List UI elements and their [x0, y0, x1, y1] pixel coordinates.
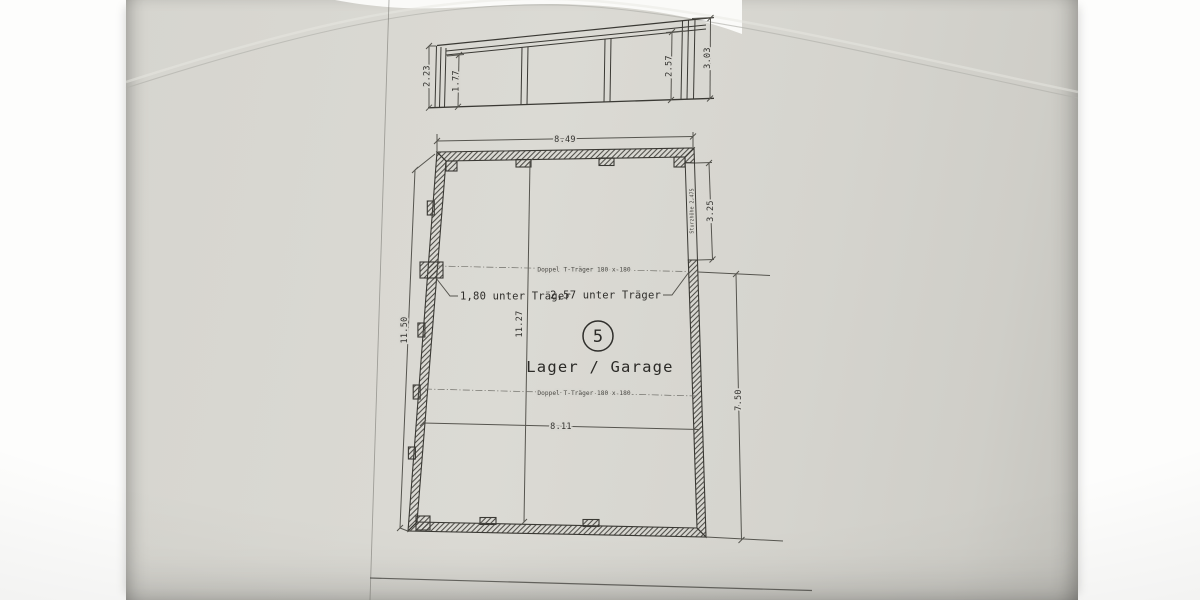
- top-wall: [437, 148, 694, 161]
- wall-opening: Sturzhöhe 2,475: [685, 163, 697, 260]
- pilaster: [416, 516, 430, 530]
- pilaster: [446, 161, 457, 171]
- paper-top-edge: [126, 0, 1078, 98]
- dim-label: 8.49: [554, 135, 576, 145]
- photo-of-drawing: 2.23 1.77 2.57: [0, 0, 1200, 600]
- dim-label: 11.50: [400, 316, 410, 343]
- pilaster: [408, 447, 415, 459]
- dim-label: 2.57: [665, 55, 675, 77]
- room-tag: 5 Lager / Garage: [526, 321, 673, 376]
- pilaster: [583, 520, 599, 527]
- bottom-wall: [408, 522, 706, 537]
- dim-label: 7.50: [734, 389, 744, 411]
- pilaster: [480, 518, 496, 525]
- lintel-label: Sturzhöhe 2,475: [690, 188, 696, 233]
- elevation-dim-left: 2.23: [423, 43, 437, 111]
- room-name: Lager / Garage: [526, 358, 673, 376]
- beam-label-upper: Doppel T-Träger 180 x 180: [537, 267, 630, 274]
- walls: [408, 148, 706, 537]
- pilaster: [418, 323, 425, 337]
- floor-plan: Sturzhöhe 2,475 8.49 11.50: [397, 132, 783, 543]
- drawing-canvas: 2.23 1.77 2.57: [0, 0, 1200, 600]
- pilaster: [674, 157, 685, 167]
- dim-label: 11.27: [515, 310, 525, 337]
- dim-label: 3.03: [703, 47, 713, 69]
- beam-label-lower: Doppel T-Träger 180 x 180: [537, 390, 630, 397]
- room-number: 5: [593, 327, 603, 347]
- dim-label: 2.23: [423, 65, 433, 87]
- dim-label: 1.77: [452, 70, 462, 92]
- pilaster: [420, 262, 443, 278]
- dim-label: 3.25: [706, 200, 716, 222]
- dim-label: 8.11: [550, 422, 572, 432]
- pilaster: [599, 158, 614, 166]
- plan-dim-opening: 3.25: [695, 160, 716, 263]
- clearance-right-label: 2,57 unter Träger: [550, 290, 661, 302]
- elevation-beam-top: [446, 25, 706, 51]
- frame-left-border: [370, 0, 389, 600]
- pilaster: [427, 201, 434, 215]
- clearance-right-callout: 2,57 unter Träger: [550, 272, 689, 302]
- beam-lines: [425, 266, 697, 396]
- elevation-drawing: 2.23 1.77 2.57: [423, 15, 715, 111]
- plan-dim-right: 7.50: [698, 271, 783, 543]
- plan-dim-interior-height: 11.27: [515, 159, 533, 526]
- plan-dim-interior-width: 8.11: [420, 420, 702, 433]
- frame-bottom-border: [370, 578, 812, 591]
- right-wall-lower: [688, 260, 706, 537]
- pilaster: [413, 385, 420, 399]
- elevation-dim-inner-left: 1.77: [447, 52, 464, 110]
